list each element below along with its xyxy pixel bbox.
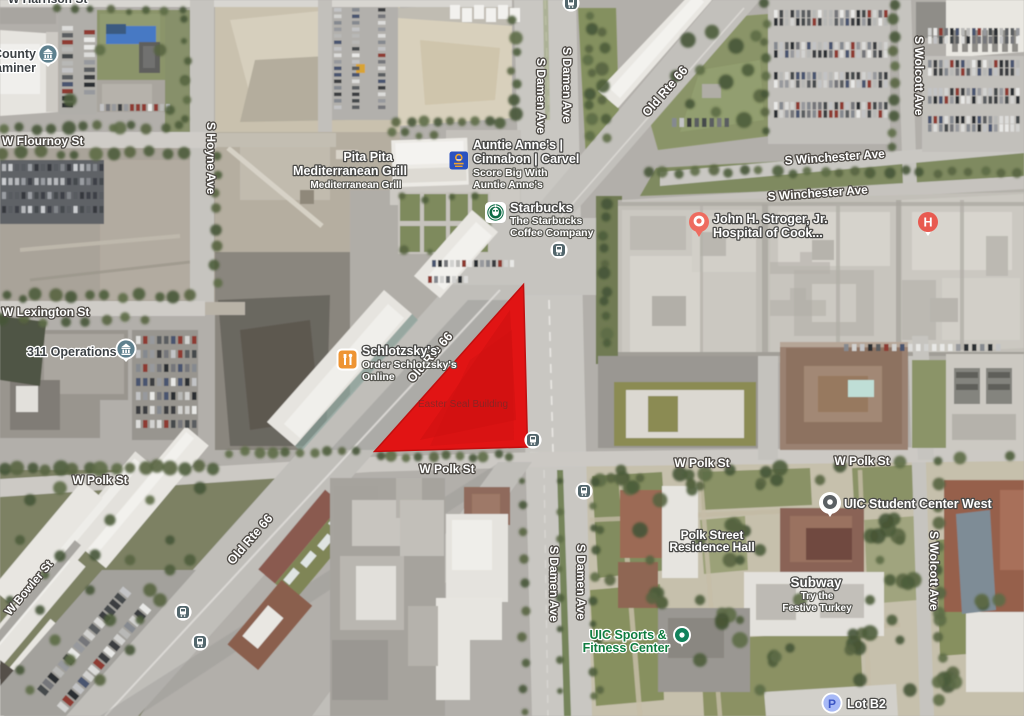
svg-text:P: P <box>828 697 836 711</box>
svg-text:Try the: Try the <box>801 591 834 602</box>
svg-text:S Hoyne Ave: S Hoyne Ave <box>204 122 218 195</box>
svg-text:Lot B2: Lot B2 <box>847 697 886 711</box>
svg-text:County: County <box>0 47 36 61</box>
svg-text:S Wolcott Ave: S Wolcott Ave <box>912 36 926 116</box>
svg-text:W Polk St: W Polk St <box>834 454 889 468</box>
svg-text:W Polk St: W Polk St <box>674 456 729 470</box>
svg-text:aminer: aminer <box>0 61 36 75</box>
svg-text:Easter Seal Building: Easter Seal Building <box>418 399 508 410</box>
svg-text:Auntie Anne's |: Auntie Anne's | <box>473 138 563 152</box>
svg-text:S Wolcott Ave: S Wolcott Ave <box>927 531 941 611</box>
svg-text:S Damen Ave: S Damen Ave <box>534 58 548 134</box>
svg-text:Mediterranean Grill: Mediterranean Grill <box>310 180 401 191</box>
svg-text:Online: Online <box>362 371 395 383</box>
svg-text:W Flournoy St: W Flournoy St <box>2 134 83 148</box>
svg-text:S Damen Ave: S Damen Ave <box>574 544 588 620</box>
svg-text:S Damen Ave: S Damen Ave <box>547 546 561 622</box>
svg-text:Auntie Anne's: Auntie Anne's <box>473 179 543 191</box>
svg-text:Hospital of Cook...: Hospital of Cook... <box>713 226 823 240</box>
svg-text:Starbucks: Starbucks <box>510 200 573 215</box>
svg-text:Score Big With: Score Big With <box>473 167 548 179</box>
svg-text:The Starbucks: The Starbucks <box>510 215 583 227</box>
svg-text:UIC Student Center West: UIC Student Center West <box>844 497 993 511</box>
svg-text:Mediterranean Grill: Mediterranean Grill <box>293 164 407 178</box>
svg-text:W Polk St: W Polk St <box>72 473 127 487</box>
svg-text:Coffee Company: Coffee Company <box>510 227 594 239</box>
svg-text:Subway: Subway <box>790 575 842 590</box>
svg-text:Schlotzsky's: Schlotzsky's <box>362 344 437 358</box>
svg-text:Residence Hall: Residence Hall <box>669 540 754 554</box>
svg-text:S Damen Ave: S Damen Ave <box>560 47 574 123</box>
svg-text:Fitness Center: Fitness Center <box>583 641 670 655</box>
svg-text:W Polk St: W Polk St <box>419 462 474 476</box>
svg-text:311 Operations: 311 Operations <box>27 345 117 359</box>
svg-text:Order Schlotzsky's: Order Schlotzsky's <box>362 359 457 371</box>
svg-text:Pita Pita: Pita Pita <box>343 150 393 164</box>
svg-text:Cinnabon | Carvel: Cinnabon | Carvel <box>473 152 579 166</box>
svg-text:Festive Turkey: Festive Turkey <box>782 603 852 614</box>
svg-text:John H. Stroger, Jr.: John H. Stroger, Jr. <box>713 212 828 226</box>
svg-text:W Lexington St: W Lexington St <box>2 305 89 319</box>
svg-text:W Harrison St: W Harrison St <box>8 0 87 6</box>
svg-text:H: H <box>923 216 932 230</box>
svg-text:UIC Sports &: UIC Sports & <box>589 628 666 642</box>
